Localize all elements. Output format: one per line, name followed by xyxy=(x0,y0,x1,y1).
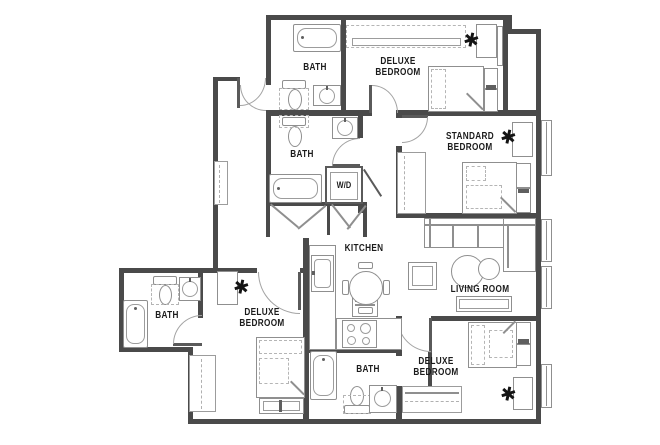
stove-burner xyxy=(347,336,356,345)
sink-icon xyxy=(374,390,391,407)
drawer-handle xyxy=(279,400,282,412)
nightstand xyxy=(484,68,498,112)
closet-shelf xyxy=(352,38,461,46)
window-glass-line xyxy=(546,268,547,307)
room-label-bath-bottom: BATH xyxy=(356,364,379,375)
bed-pillow xyxy=(466,166,486,181)
faucet-icon xyxy=(301,36,304,39)
closet xyxy=(397,152,426,214)
nightstand-handle xyxy=(486,85,496,90)
stove-burner xyxy=(360,323,371,334)
standard-bedroom-door-arc xyxy=(402,117,428,143)
wall xyxy=(431,316,541,321)
bed-pillow xyxy=(259,340,302,354)
room-label-deluxe-bedroom-bottom: DELUXE BEDROOM xyxy=(413,356,458,378)
sofa-back-line xyxy=(424,224,536,226)
sink-icon xyxy=(182,281,198,297)
floor-plan: ✱ ✱ ✱ ✱ BATH DELUXE BEDROOM STANDARD BED… xyxy=(0,0,660,445)
bed-blanket xyxy=(489,330,513,358)
wall xyxy=(266,15,271,85)
wall xyxy=(188,419,541,424)
room-label-bath-top: BATH xyxy=(303,62,326,73)
bath-top-door-arc xyxy=(240,85,266,111)
desk-chair-icon: ✱ xyxy=(231,277,251,299)
deluxe-top-door-arc xyxy=(372,85,398,113)
bed-blanket xyxy=(259,358,289,384)
wall xyxy=(268,15,512,20)
sink-icon xyxy=(337,120,353,136)
side-table-inner xyxy=(412,266,433,286)
laundry-door-leaf xyxy=(363,169,382,197)
window xyxy=(497,26,503,66)
stove-burner xyxy=(362,337,370,345)
dining-chair xyxy=(358,262,373,269)
sofa-arm-line xyxy=(429,218,431,248)
nightstand-handle xyxy=(518,189,529,193)
desk xyxy=(476,24,497,58)
closet-rod xyxy=(201,359,202,409)
room-label-bath-left: BATH xyxy=(155,310,178,321)
sofa-cushion-line xyxy=(477,225,479,248)
room-label-laundry: W/D xyxy=(337,180,352,191)
wall xyxy=(213,77,240,81)
hall-closet xyxy=(214,161,228,205)
room-label-deluxe-bedroom-top: DELUXE BEDROOM xyxy=(375,56,420,78)
closet-rod xyxy=(405,401,459,402)
toilet-clearance xyxy=(279,115,309,128)
bifold-door-leaf xyxy=(297,205,326,230)
faucet-icon xyxy=(344,118,346,122)
closet-rod xyxy=(404,156,405,210)
coffee-table-small xyxy=(478,258,500,280)
closet xyxy=(189,355,216,412)
wall xyxy=(300,268,309,273)
sink-icon xyxy=(319,88,335,104)
window-glass-line xyxy=(546,221,547,260)
faucet-icon xyxy=(312,271,315,275)
room-label-standard-bedroom: STANDARD BEDROOM xyxy=(446,131,494,153)
bath-middle-door-arc xyxy=(332,138,360,166)
deluxe-bottom-door-arc xyxy=(397,318,431,352)
room-label-bath-middle: BATH xyxy=(290,149,313,160)
toilet-clearance xyxy=(151,284,179,305)
bed-pillow xyxy=(471,325,485,365)
bed-pillow xyxy=(431,69,446,109)
kitchen-sink-basin xyxy=(314,259,331,288)
wall xyxy=(327,205,330,235)
sofa-cushion-line xyxy=(452,225,454,248)
dining-chair xyxy=(383,280,390,295)
bathtub-basin xyxy=(126,304,145,344)
nightstand-handle xyxy=(518,339,529,344)
room-label-living-room: LIVING ROOM xyxy=(451,284,510,295)
tv-stand-inner xyxy=(459,299,509,309)
wall xyxy=(358,116,363,138)
room-label-deluxe-bedroom-left: DELUXE BEDROOM xyxy=(239,307,284,329)
dining-chair xyxy=(358,307,373,314)
closet-rod xyxy=(219,165,220,203)
toilet-clearance xyxy=(343,395,371,414)
room-label-kitchen: KITCHEN xyxy=(345,243,384,254)
faucet-icon xyxy=(381,387,383,391)
wall xyxy=(503,20,508,110)
faucet-icon xyxy=(277,187,280,190)
faucet-icon xyxy=(189,278,191,282)
bathtub-basin xyxy=(313,355,334,396)
window-glass-line xyxy=(546,366,547,406)
bifold-door-leaf xyxy=(270,203,299,228)
wall xyxy=(266,202,270,237)
stove-burner xyxy=(347,324,355,332)
toilet-clearance xyxy=(279,88,309,110)
closet-shelf-line xyxy=(405,392,459,394)
bed-blanket xyxy=(466,185,502,209)
window-glass-line xyxy=(546,122,547,174)
faucet-icon xyxy=(322,358,325,361)
faucet-icon xyxy=(326,86,328,90)
toilet-icon xyxy=(288,126,302,147)
faucet-icon xyxy=(134,307,137,310)
sofa-chaise-line xyxy=(507,225,509,268)
dining-chair xyxy=(342,280,349,295)
dining-table xyxy=(349,271,383,305)
closet xyxy=(402,386,462,413)
